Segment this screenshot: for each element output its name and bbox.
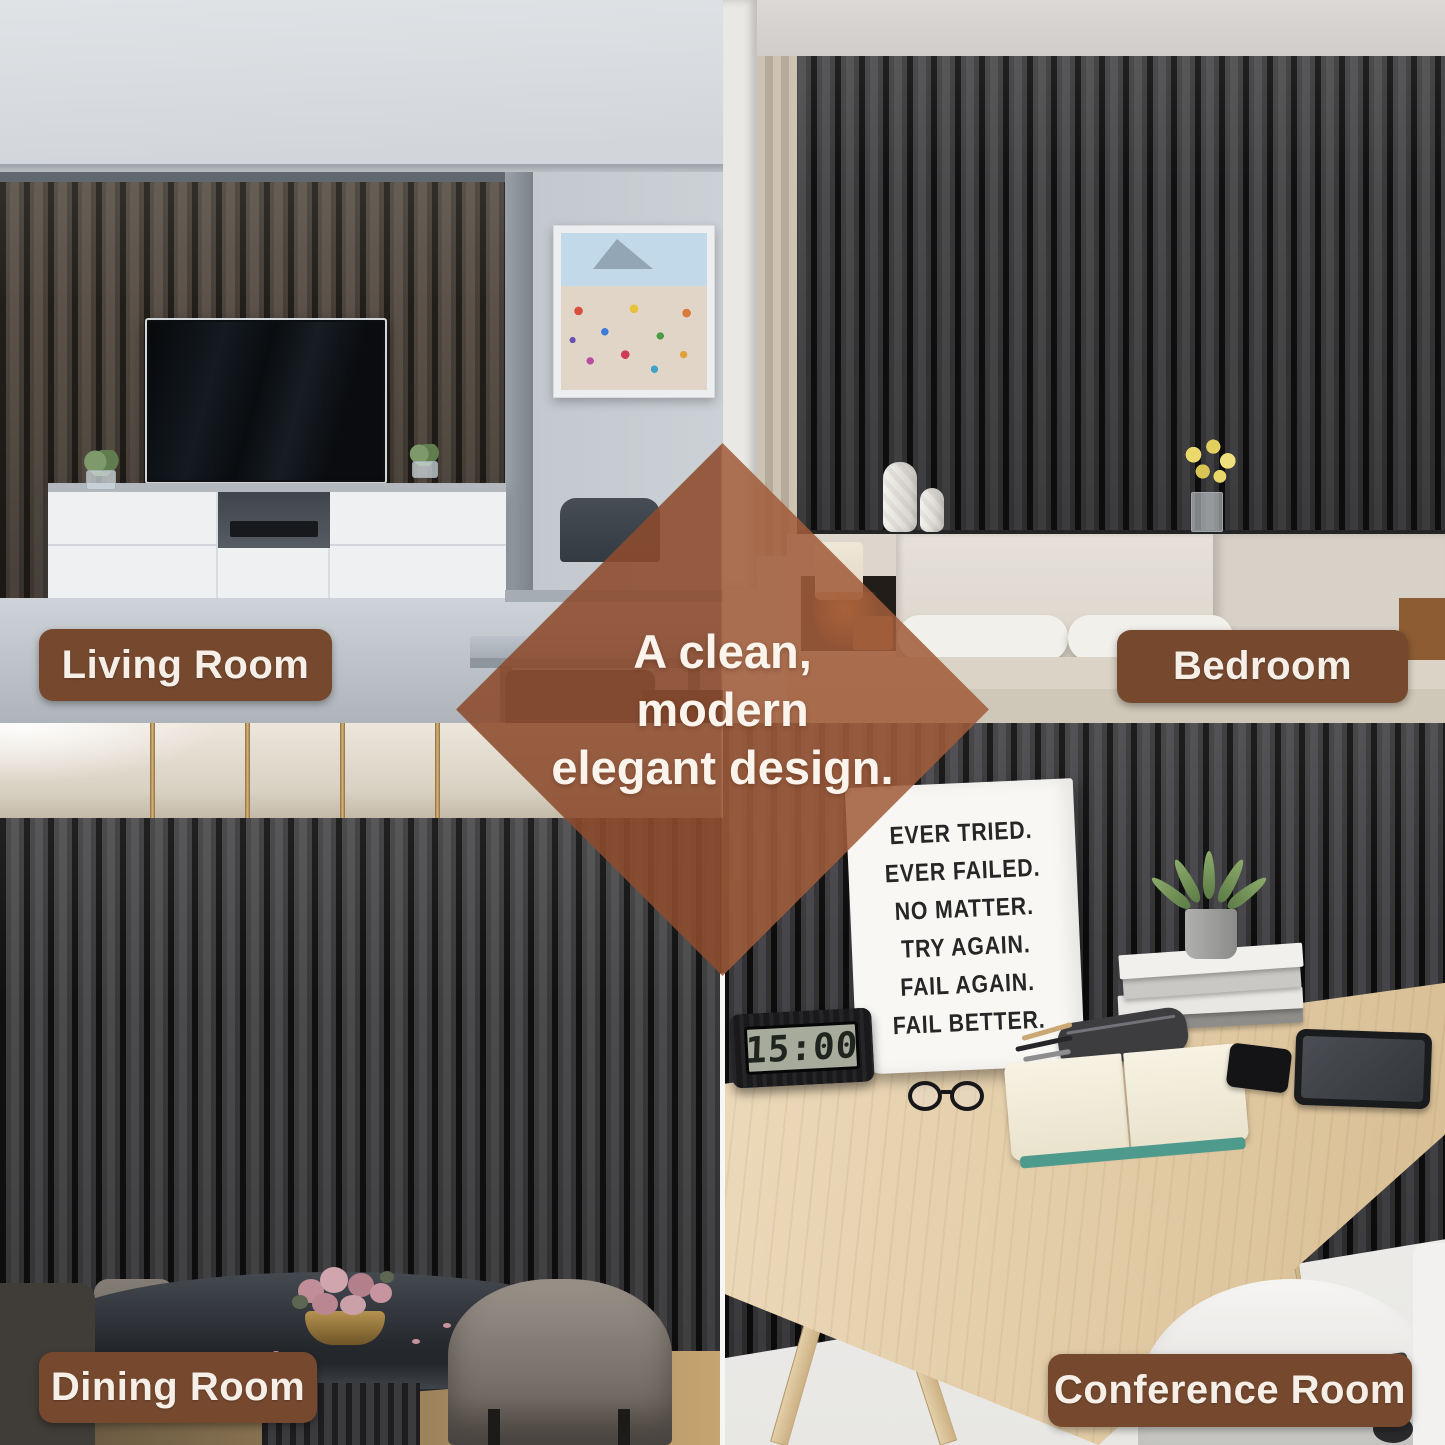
open-notebook xyxy=(1004,1043,1253,1175)
bedroom-curtain xyxy=(757,56,797,556)
plant-pot xyxy=(86,470,116,490)
poster-line: FAIL AGAIN. xyxy=(870,967,1065,1004)
console-drawer xyxy=(330,546,506,601)
eyeglasses xyxy=(908,1081,988,1117)
console-drawer xyxy=(48,492,218,546)
tablet xyxy=(1294,1029,1433,1110)
living-room-label: Living Room xyxy=(39,629,332,701)
wall-art-frame xyxy=(553,225,715,398)
white-chair-partial xyxy=(1413,1243,1445,1445)
console-top xyxy=(48,483,506,492)
wall-art xyxy=(561,233,707,390)
petal xyxy=(412,1339,420,1344)
poster-line: NO MATTER. xyxy=(867,891,1062,928)
glasses-lens xyxy=(908,1081,942,1111)
console-drawer xyxy=(48,546,218,601)
conference-room-label: Conference Room xyxy=(1048,1354,1412,1427)
living-ceiling xyxy=(0,0,723,172)
media-player xyxy=(230,521,318,537)
brass-strip xyxy=(340,723,345,820)
poster-line: EVER TRIED. xyxy=(864,815,1059,852)
bedroom-ceiling xyxy=(723,0,1445,60)
poster-line: EVER FAILED. xyxy=(865,853,1060,890)
smartphone xyxy=(1226,1042,1293,1093)
dining-chair-right xyxy=(448,1279,672,1445)
poster-line: TRY AGAIN. xyxy=(868,929,1063,966)
white-vase-small xyxy=(920,488,944,532)
diamond-tagline-line: elegant design. xyxy=(551,739,893,797)
white-vase-large xyxy=(883,462,917,532)
art-mountain xyxy=(593,239,653,269)
living-room-label-text: Living Room xyxy=(62,643,310,688)
rose xyxy=(320,1267,348,1293)
product-collage: Living Room Bedroom xyxy=(0,0,1445,1445)
dining-room-label: Dining Room xyxy=(39,1352,317,1423)
glasses-bridge xyxy=(941,1090,951,1094)
console-open-shelf xyxy=(218,492,330,548)
dining-room-label-text: Dining Room xyxy=(51,1365,305,1410)
rose xyxy=(340,1295,366,1315)
ceiling-light xyxy=(0,723,220,783)
television xyxy=(145,318,387,484)
slat-sheen xyxy=(787,56,1445,532)
tablet-screen xyxy=(1301,1036,1425,1102)
console-drawer xyxy=(218,548,330,601)
vase-facets xyxy=(883,462,917,532)
art-colorful-city xyxy=(561,286,707,390)
notebook-page xyxy=(1004,1053,1130,1161)
console-drawer xyxy=(330,492,506,546)
rose xyxy=(312,1293,338,1315)
vase-facets xyxy=(920,488,944,532)
plant-pot xyxy=(412,461,438,478)
rose-bouquet xyxy=(292,1265,398,1317)
plant-pot xyxy=(1185,909,1237,959)
brass-strip xyxy=(150,723,155,820)
brass-strip xyxy=(435,723,440,820)
digital-clock: 15:00 xyxy=(729,1007,875,1088)
rose-leaf xyxy=(380,1271,394,1283)
brass-strip xyxy=(245,723,250,820)
diamond-tagline-line: modern xyxy=(636,681,808,739)
yellow-flowers xyxy=(1175,433,1241,495)
bedroom-slat-wall xyxy=(787,56,1445,532)
tv-screen xyxy=(149,322,383,480)
clock-display: 15:00 xyxy=(744,1021,860,1075)
conference-room-label-text: Conference Room xyxy=(1054,1368,1406,1413)
chair-leg xyxy=(618,1409,630,1445)
clock-time: 15:00 xyxy=(745,1024,860,1071)
leaf xyxy=(1203,851,1215,899)
bedroom-label: Bedroom xyxy=(1117,630,1408,703)
chair-leg xyxy=(488,1409,500,1445)
diamond-tagline-line: A clean, xyxy=(633,623,812,681)
rose-leaf xyxy=(292,1295,308,1309)
glasses-lens xyxy=(950,1081,984,1111)
quadrant-divider xyxy=(720,973,725,1445)
living-recess-trim xyxy=(505,172,533,604)
bedroom-label-text: Bedroom xyxy=(1173,644,1352,689)
rose xyxy=(370,1283,392,1303)
tv-console xyxy=(48,483,506,601)
petal xyxy=(443,1323,451,1328)
glass-vase xyxy=(1191,492,1223,532)
